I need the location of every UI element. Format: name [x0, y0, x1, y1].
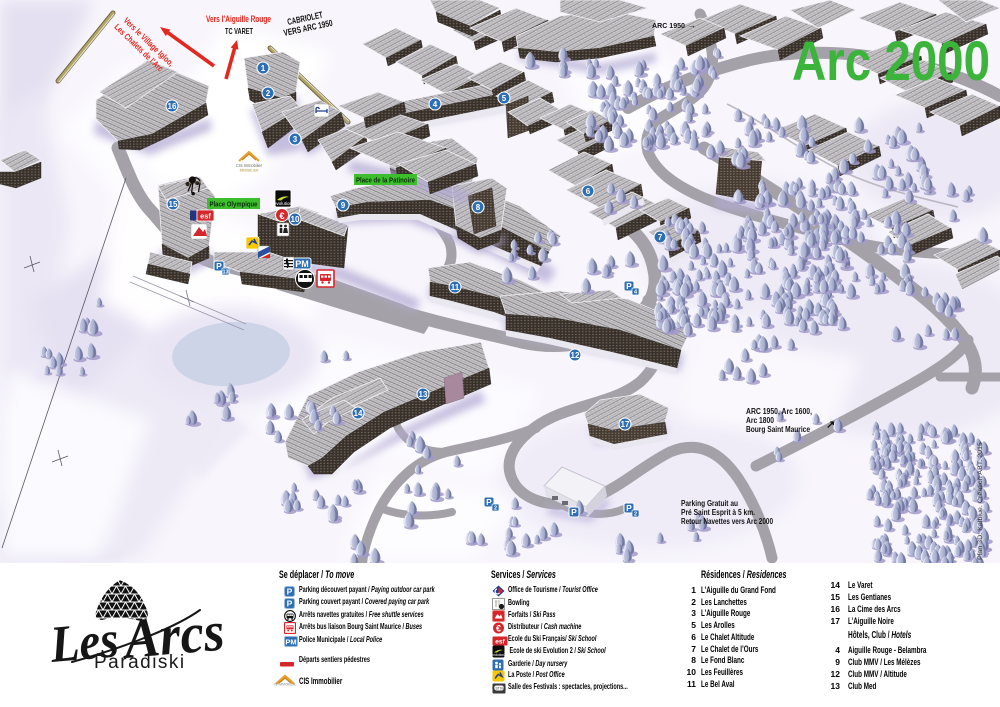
svg-text:P: P: [216, 261, 222, 271]
svg-text:€: €: [279, 211, 285, 222]
svg-text:Arc 2000: Arc 2000: [792, 29, 990, 92]
svg-text:ARC 1950, Arc 1600,: ARC 1950, Arc 1600,: [746, 407, 812, 416]
svg-text:8: 8: [476, 203, 481, 212]
svg-text:evolution: evolution: [274, 201, 293, 206]
svg-text:P: P: [626, 503, 632, 513]
svg-text:FESTIVAL: FESTIVAL: [492, 686, 506, 690]
svg-text:ARC 1950: ARC 1950: [652, 21, 685, 30]
svg-text:Retour Navettes vers Arc 2000: Retour Navettes vers Arc 2000: [681, 517, 773, 526]
svg-text:P: P: [287, 599, 293, 609]
svg-text:5: 5: [502, 94, 507, 103]
svg-text:P: P: [626, 281, 632, 291]
svg-text:14: 14: [354, 409, 363, 418]
svg-text:4: 4: [433, 100, 438, 109]
svg-text:17: 17: [621, 420, 630, 429]
svg-text:2: 2: [266, 89, 271, 98]
svg-text:Vers l’Aiguille Rouge: Vers l’Aiguille Rouge: [206, 14, 271, 24]
svg-text:10: 10: [291, 215, 300, 224]
svg-text:3: 3: [293, 135, 298, 144]
svg-text:evolution2: evolution2: [492, 653, 505, 657]
svg-text:11: 11: [451, 283, 460, 292]
svg-text:CIS IMMOBILIER: CIS IMMOBILIER: [274, 683, 296, 687]
svg-text:→: →: [688, 21, 696, 30]
svg-text:6: 6: [586, 187, 591, 196]
svg-text:2: 2: [634, 512, 637, 518]
svg-text:2: 2: [494, 506, 497, 512]
svg-text:1: 1: [261, 64, 266, 73]
svg-text:P: P: [571, 507, 577, 517]
svg-text:Bourg Saint Maurice: Bourg Saint Maurice: [746, 425, 810, 434]
svg-text:PM: PM: [285, 637, 296, 646]
svg-text:Place de la Patinoire: Place de la Patinoire: [356, 176, 415, 185]
svg-text:13: 13: [419, 390, 428, 399]
svg-text:Place Olympique: Place Olympique: [210, 200, 258, 209]
svg-text:esf: esf: [200, 212, 211, 221]
svg-text:13: 13: [222, 270, 228, 276]
svg-text:IMMOBILIER: IMMOBILIER: [240, 169, 259, 173]
svg-text:7: 7: [658, 233, 663, 242]
svg-text:12: 12: [571, 351, 580, 360]
svg-text:TC VARET: TC VARET: [225, 26, 254, 36]
svg-text:↗: ↗: [826, 419, 835, 431]
svg-text:9: 9: [341, 201, 346, 210]
svg-text:16: 16: [168, 102, 177, 111]
svg-text:Arc 1800: Arc 1800: [746, 416, 774, 425]
svg-text:Parking Gratuit au: Parking Gratuit au: [681, 499, 738, 508]
svg-text:Pré Saint Esprit à 5 km.: Pré Saint Esprit à 5 km.: [681, 508, 755, 517]
svg-text:Plan 3D: Kalblue. Création ABT: Plan 3D: Kalblue. Création ABT. 2015: [977, 442, 984, 560]
svg-text:PM: PM: [295, 259, 309, 269]
svg-text:15: 15: [169, 200, 178, 209]
svg-text:P: P: [486, 497, 492, 507]
